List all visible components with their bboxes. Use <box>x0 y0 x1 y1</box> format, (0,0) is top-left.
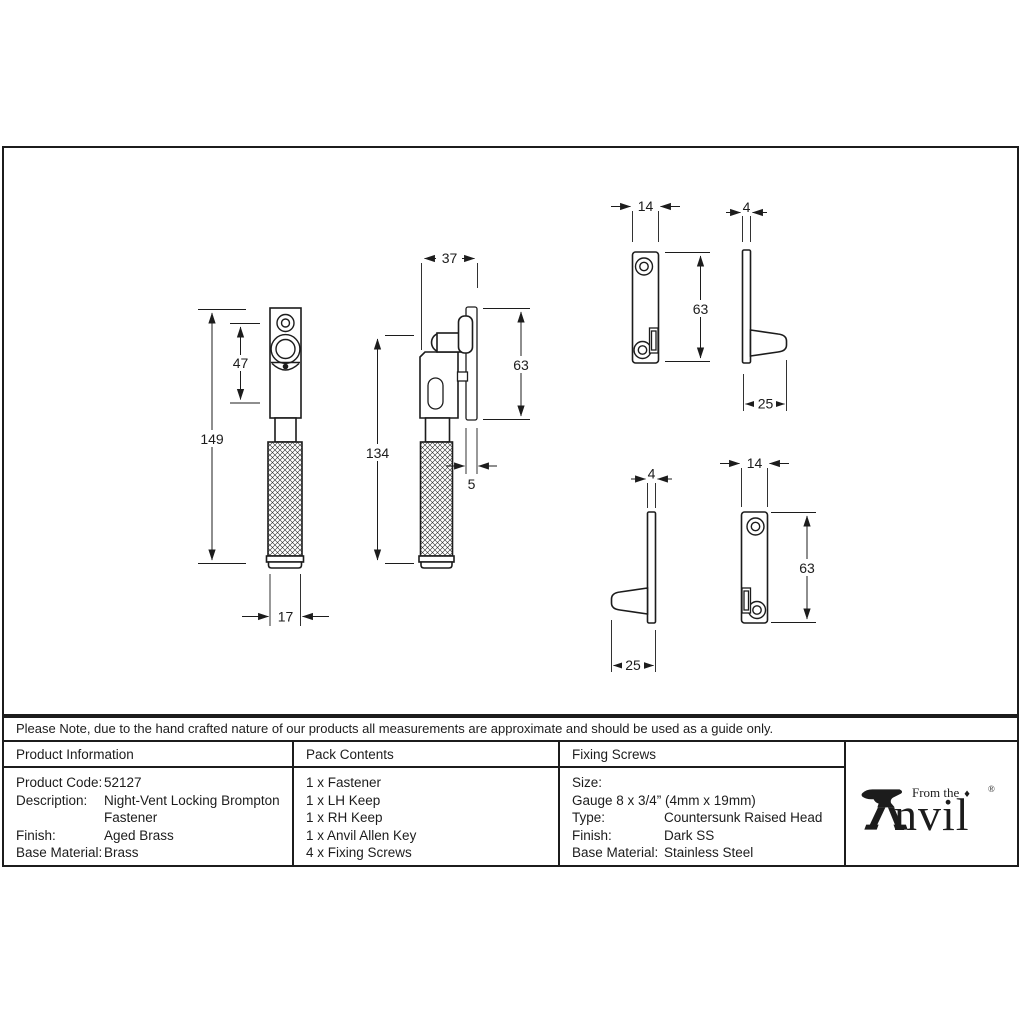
field-value: Stainless Steel <box>664 844 753 862</box>
dim-front-height: 149 <box>200 431 224 447</box>
technical-drawing-area: 149 47 17 <box>4 148 1017 714</box>
dim-keep-right-width: 14 <box>638 198 654 214</box>
field-value: Dark SS <box>664 827 714 845</box>
fixing-screws-column: Fixing Screws Size:Gauge 8 x 3/4” (4mm x… <box>558 742 844 865</box>
dim-keep-left-width: 14 <box>747 455 763 471</box>
field-label: Type: <box>572 809 664 827</box>
from-the-anvil-logo: nvil From the ♦ ® <box>860 782 1004 834</box>
keep-tongue <box>751 330 787 356</box>
fastener-side-view: 37 134 63 5 <box>360 250 535 568</box>
field-value: Gauge 8 x 3/4” (4mm x 19mm) <box>572 792 756 810</box>
table-row: Type:Countersunk Raised Head <box>572 809 840 827</box>
brand-header-spacer <box>846 742 1017 768</box>
product-information-cell: Product Code:52127 Description:Night-Ven… <box>4 768 292 862</box>
dim-side-height: 134 <box>366 445 390 461</box>
spec-table: Product Information Product Code:52127 D… <box>4 742 1017 865</box>
fixing-screws-cell: Size:Gauge 8 x 3/4” (4mm x 19mm) Type:Co… <box>560 768 844 862</box>
pack-contents-cell: 1 x Fastener 1 x LH Keep 1 x RH Keep 1 x… <box>294 768 558 862</box>
dim-keep-left-height: 63 <box>799 560 815 576</box>
field-label: Finish: <box>572 827 664 845</box>
product-spec-sheet: { "colors": { "ink": "#1c1c1c", "backgro… <box>0 0 1024 1024</box>
field-label: Base Material: <box>572 844 664 862</box>
table-row: Fastener <box>16 809 288 827</box>
table-row: Product Code:52127 <box>16 774 288 792</box>
keep-tongue <box>612 588 648 614</box>
field-label: Product Code: <box>16 774 104 792</box>
technical-drawing: 149 47 17 <box>4 148 1017 714</box>
dim-front-width: 17 <box>278 609 294 625</box>
logo-prefix: From the <box>912 785 960 800</box>
field-label: Description: <box>16 792 104 810</box>
table-row: Base Material:Stainless Steel <box>572 844 840 862</box>
dim-keep-left-thickness: 4 <box>648 466 656 482</box>
keep-front-view-right: 14 63 <box>611 198 715 363</box>
table-row: Base Material:Brass <box>16 844 288 862</box>
keep-front-view-left: 14 63 <box>720 455 821 623</box>
list-item: 1 x Anvil Allen Key <box>306 827 554 845</box>
fixing-screws-header: Fixing Screws <box>560 742 844 768</box>
list-item: 1 x RH Keep <box>306 809 554 827</box>
product-information-column: Product Information Product Code:52127 D… <box>4 742 292 865</box>
list-item: 1 x LH Keep <box>306 792 554 810</box>
dim-side-depth: 37 <box>442 250 458 266</box>
dim-front-plate-height: 47 <box>233 355 249 371</box>
keep-side-view-right: 4 25 <box>726 199 787 412</box>
brand-column: nvil From the ♦ ® <box>844 742 1017 865</box>
table-row: Size:Gauge 8 x 3/4” (4mm x 19mm) <box>572 774 840 809</box>
table-row: Description:Night-Vent Locking Brompton <box>16 792 288 810</box>
dim-side-keep-thickness: 5 <box>468 476 476 492</box>
pack-contents-header: Pack Contents <box>294 742 558 768</box>
measurement-note: Please Note, due to the hand crafted nat… <box>4 714 1017 742</box>
field-label: Base Material: <box>16 844 104 862</box>
table-row: Finish:Dark SS <box>572 827 840 845</box>
field-value: Brass <box>104 844 139 862</box>
dim-keep-left-projection: 25 <box>625 657 641 673</box>
dim-keep-right-height: 63 <box>693 301 709 317</box>
table-row: Finish:Aged Brass <box>16 827 288 845</box>
field-value: Aged Brass <box>104 827 174 845</box>
field-value: Night-Vent Locking Brompton <box>104 792 280 810</box>
fastener-front-view: 149 47 17 <box>196 308 329 626</box>
field-label: Finish: <box>16 827 104 845</box>
logo-diamond-icon: ♦ <box>963 790 971 800</box>
registered-trademark-icon: ® <box>988 784 995 794</box>
grub-screw-dot <box>283 364 289 370</box>
product-information-header: Product Information <box>4 742 292 768</box>
field-value: Countersunk Raised Head <box>664 809 822 827</box>
dim-keep-right-projection: 25 <box>758 396 774 412</box>
pack-contents-column: Pack Contents 1 x Fastener 1 x LH Keep 1… <box>292 742 558 865</box>
knurled-handle-front <box>268 442 302 556</box>
keep-side-view-left: 4 25 <box>612 466 673 674</box>
anvil-logo-graphic: nvil From the ♦ ® <box>860 782 1004 834</box>
oval-slot <box>428 378 443 409</box>
dim-keep-right-thickness: 4 <box>743 199 751 215</box>
field-value: Fastener <box>104 809 157 827</box>
sheet-frame: 149 47 17 <box>2 146 1019 867</box>
dim-side-keep-height: 63 <box>513 357 529 373</box>
list-item: 4 x Fixing Screws <box>306 844 554 862</box>
list-item: 1 x Fastener <box>306 774 554 792</box>
field-label: Size: <box>572 774 664 792</box>
knurled-handle-side <box>421 442 453 556</box>
field-value: 52127 <box>104 774 142 792</box>
